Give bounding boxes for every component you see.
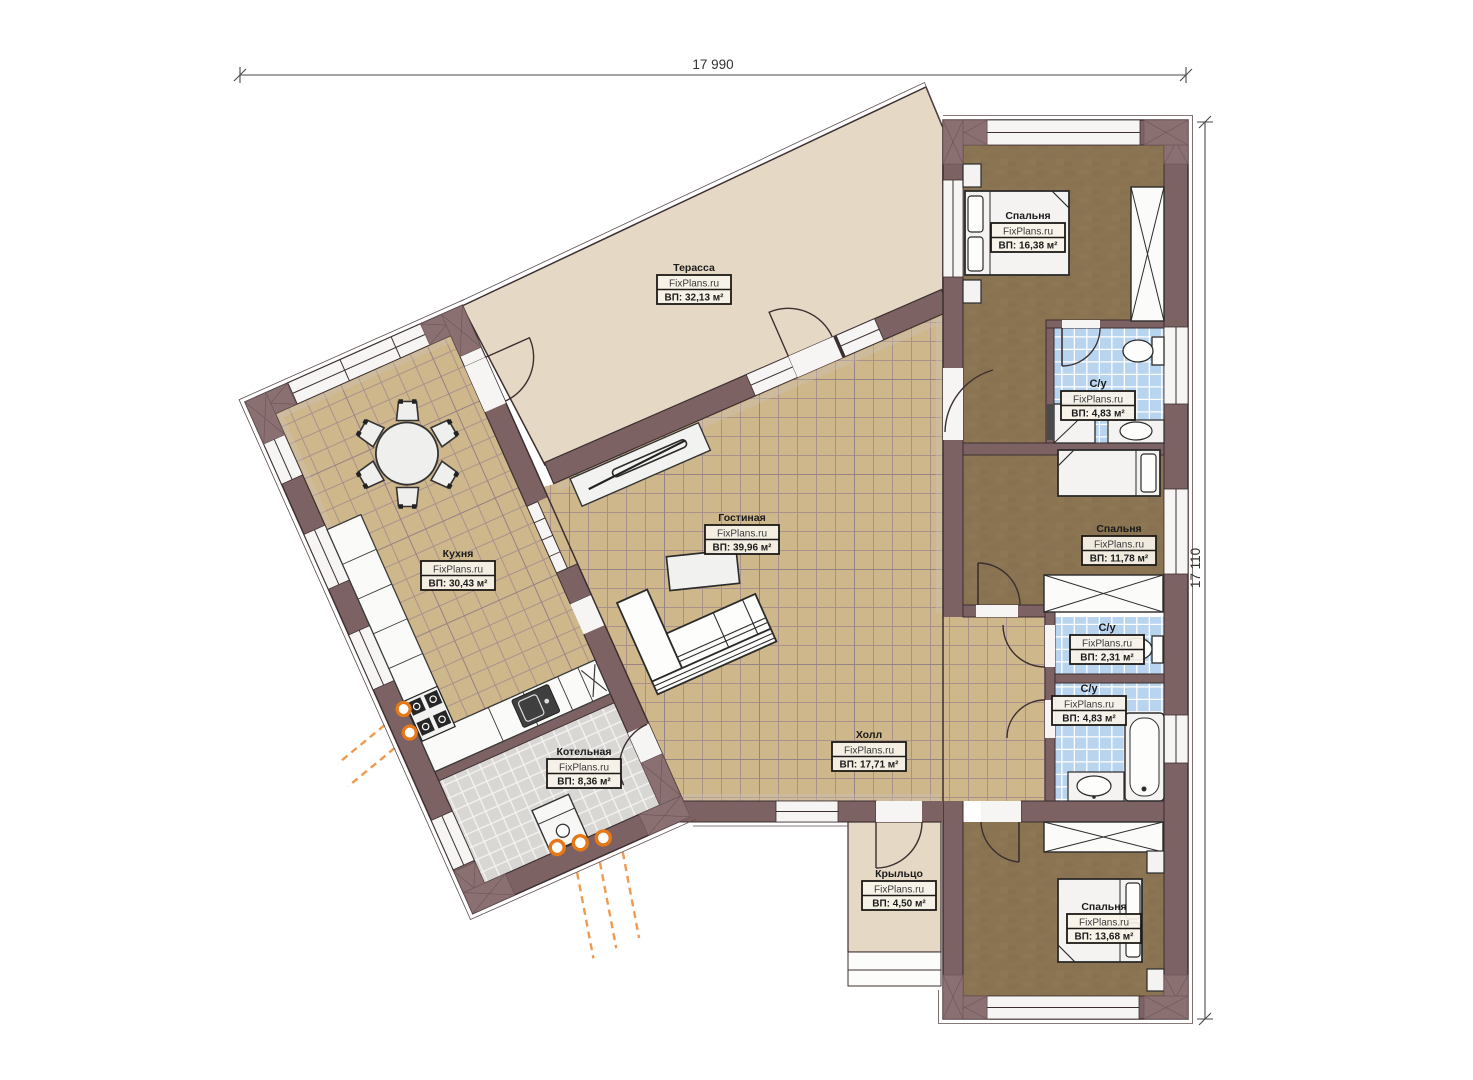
svg-text:FixPlans.ru: FixPlans.ru <box>844 746 894 757</box>
svg-text:С/у: С/у <box>1080 683 1098 695</box>
svg-text:ВП: 2,31 м²: ВП: 2,31 м² <box>1080 653 1134 664</box>
svg-text:ВП: 32,13 м²: ВП: 32,13 м² <box>664 293 724 304</box>
svg-text:17 990: 17 990 <box>692 57 733 72</box>
svg-text:С/у: С/у <box>1098 622 1116 634</box>
svg-text:FixPlans.ru: FixPlans.ru <box>1064 700 1114 711</box>
svg-text:Гостиная: Гостиная <box>718 512 765 524</box>
svg-text:Котельная: Котельная <box>557 746 612 758</box>
svg-text:ВП: 16,38 м²: ВП: 16,38 м² <box>998 241 1058 252</box>
svg-text:FixPlans.ru: FixPlans.ru <box>717 529 767 540</box>
svg-text:ВП: 8,36 м²: ВП: 8,36 м² <box>557 777 611 788</box>
svg-text:Кухня: Кухня <box>443 548 474 560</box>
svg-text:Холл: Холл <box>856 729 882 741</box>
svg-text:FixPlans.ru: FixPlans.ru <box>559 763 609 774</box>
svg-text:ВП: 13,68 м²: ВП: 13,68 м² <box>1074 932 1134 943</box>
svg-text:FixPlans.ru: FixPlans.ru <box>1094 540 1144 551</box>
svg-text:С/у: С/у <box>1089 378 1107 390</box>
svg-text:Спальня: Спальня <box>1005 210 1050 222</box>
svg-text:ВП: 4,50 м²: ВП: 4,50 м² <box>872 899 926 910</box>
svg-text:FixPlans.ru: FixPlans.ru <box>874 885 924 896</box>
svg-text:Спальня: Спальня <box>1081 901 1126 913</box>
svg-text:ВП: 17,71 м²: ВП: 17,71 м² <box>839 760 899 771</box>
svg-text:FixPlans.ru: FixPlans.ru <box>433 565 483 576</box>
svg-text:FixPlans.ru: FixPlans.ru <box>669 279 719 290</box>
svg-text:ВП: 4,83 м²: ВП: 4,83 м² <box>1062 714 1116 725</box>
svg-text:Спальня: Спальня <box>1096 523 1141 535</box>
svg-text:Терасса: Терасса <box>673 262 715 274</box>
svg-text:FixPlans.ru: FixPlans.ru <box>1073 395 1123 406</box>
svg-text:ВП: 4,83 м²: ВП: 4,83 м² <box>1071 409 1125 420</box>
svg-text:Крыльцо: Крыльцо <box>875 868 923 880</box>
svg-text:ВП: 11,78 м²: ВП: 11,78 м² <box>1090 554 1149 565</box>
svg-text:ВП: 39,96 м²: ВП: 39,96 м² <box>712 543 772 554</box>
svg-text:ВП: 30,43 м²: ВП: 30,43 м² <box>428 579 488 590</box>
svg-text:17 110: 17 110 <box>1188 548 1203 588</box>
svg-text:FixPlans.ru: FixPlans.ru <box>1003 227 1053 238</box>
svg-text:FixPlans.ru: FixPlans.ru <box>1079 918 1129 929</box>
svg-text:FixPlans.ru: FixPlans.ru <box>1082 639 1132 650</box>
